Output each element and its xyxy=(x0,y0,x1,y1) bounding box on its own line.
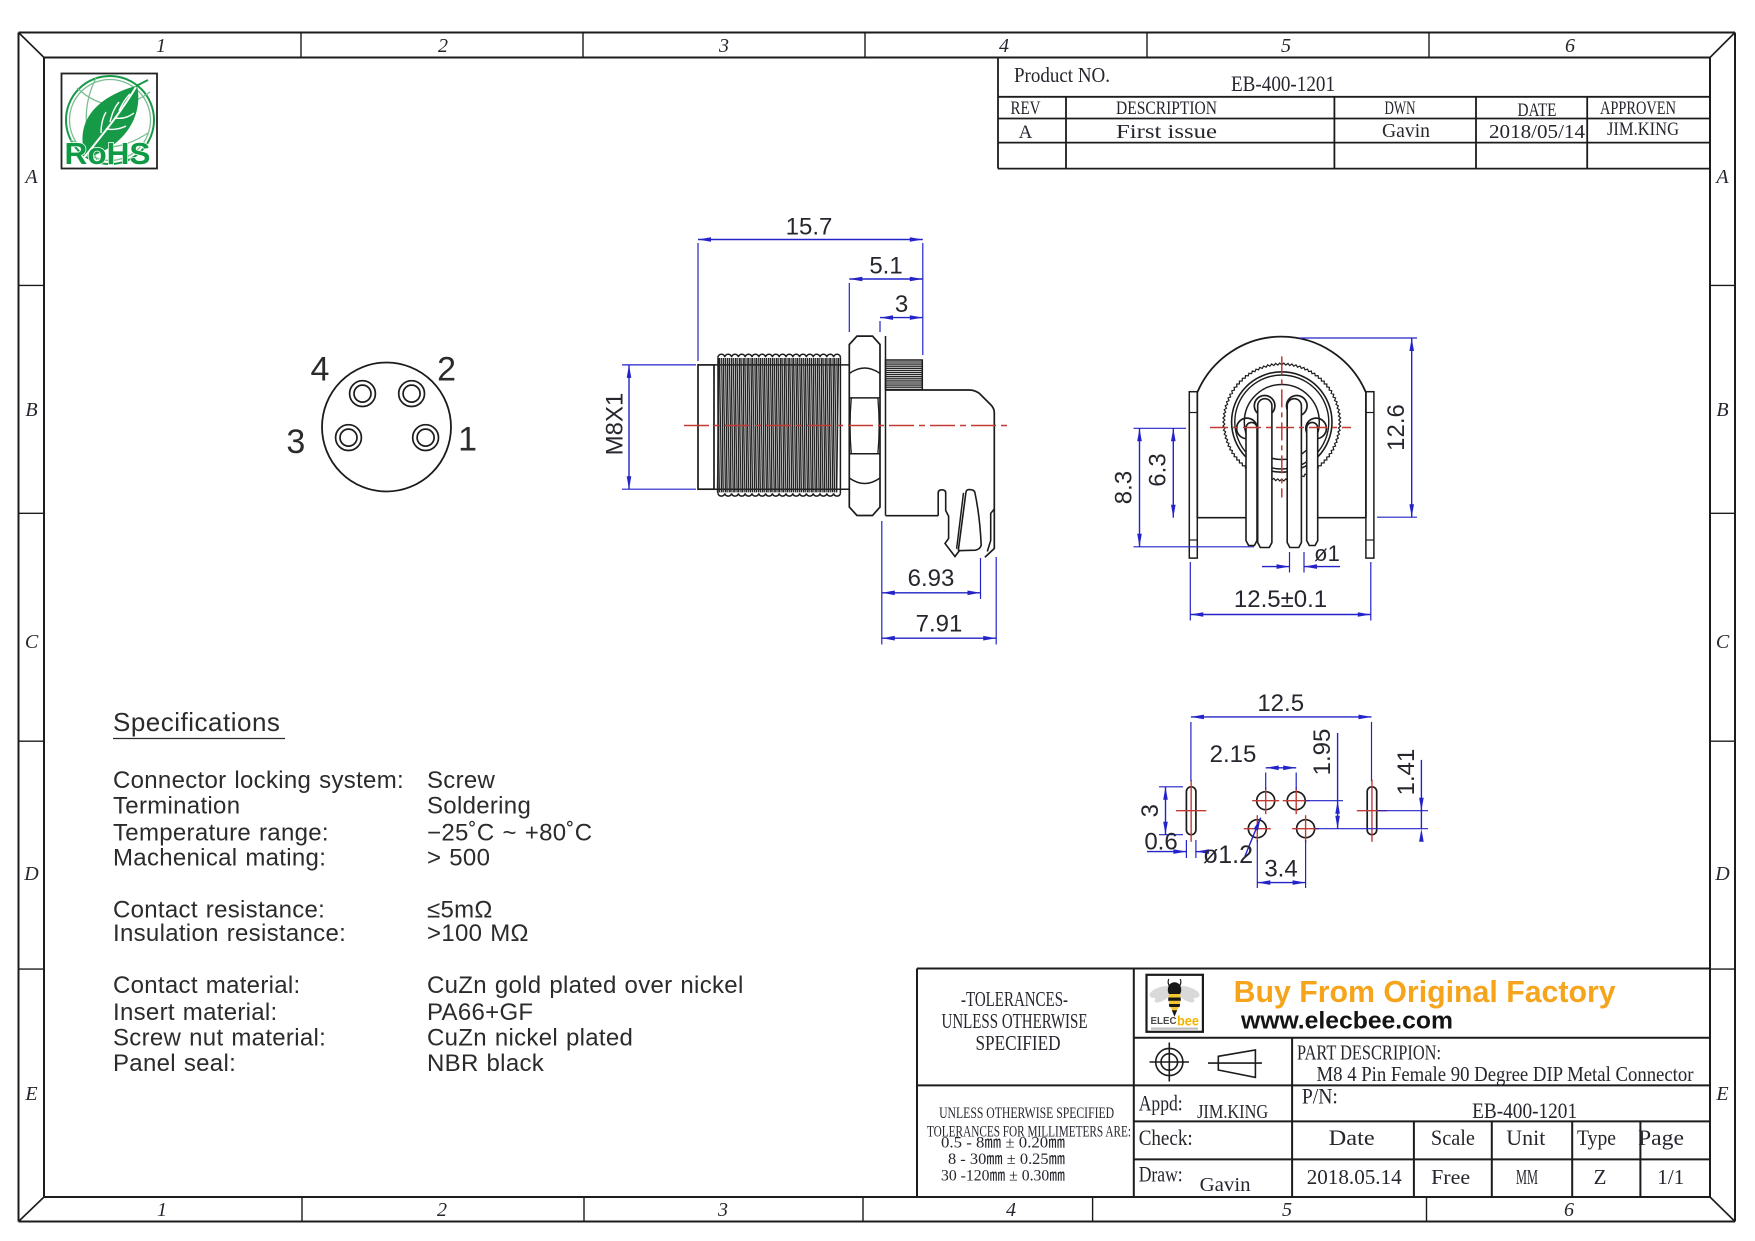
svg-text:4: 4 xyxy=(311,350,330,388)
svg-text:P/N:: P/N: xyxy=(1302,1083,1338,1108)
svg-text:REV: REV xyxy=(1011,98,1041,119)
svg-text:SPECIFIED: SPECIFIED xyxy=(976,1031,1061,1055)
svg-text:4: 4 xyxy=(1006,1199,1016,1221)
svg-text:RoHS: RoHS xyxy=(65,136,151,171)
svg-text:2: 2 xyxy=(437,1199,447,1221)
svg-text:6: 6 xyxy=(1564,1199,1574,1221)
svg-text:First issue: First issue xyxy=(1116,121,1217,143)
svg-text:JIM.KING: JIM.KING xyxy=(1607,119,1679,140)
svg-text:MM: MM xyxy=(1516,1165,1538,1189)
svg-text:CuZn nickel plated: CuZn nickel plated xyxy=(427,1025,633,1052)
svg-text:E: E xyxy=(24,1083,37,1105)
svg-text:D: D xyxy=(23,863,39,885)
svg-text:5: 5 xyxy=(1282,1199,1292,1221)
svg-text:2: 2 xyxy=(437,350,456,388)
svg-text:2: 2 xyxy=(438,35,448,57)
svg-text:−25˚C ~ +80˚C: −25˚C ~ +80˚C xyxy=(427,820,592,847)
svg-text:C: C xyxy=(1716,631,1730,653)
svg-text:5: 5 xyxy=(1281,35,1291,57)
svg-text:Unit: Unit xyxy=(1506,1125,1545,1150)
svg-text:12.5±0.1: 12.5±0.1 xyxy=(1234,586,1327,613)
svg-text:Page: Page xyxy=(1638,1125,1684,1150)
svg-text:ø1: ø1 xyxy=(1314,541,1340,566)
svg-text:Panel seal:: Panel seal: xyxy=(113,1050,236,1077)
svg-text:DESCRIPTION: DESCRIPTION xyxy=(1116,98,1217,119)
svg-text:1.95: 1.95 xyxy=(1309,729,1336,776)
svg-text:D: D xyxy=(1714,863,1730,885)
svg-text:Z: Z xyxy=(1594,1165,1607,1189)
svg-text:ELEC: ELEC xyxy=(1151,1015,1177,1027)
svg-text:5.1: 5.1 xyxy=(869,253,902,280)
svg-text:> 500: > 500 xyxy=(427,845,490,872)
svg-text:2.15: 2.15 xyxy=(1210,741,1257,768)
svg-text:Connector locking system:: Connector locking system: xyxy=(113,767,404,794)
svg-text:8.3: 8.3 xyxy=(1111,471,1138,504)
svg-text:6: 6 xyxy=(1565,35,1575,57)
svg-text:A: A xyxy=(1714,166,1729,188)
svg-text:M8 4 Pin Female 90 Degree DIP: M8 4 Pin Female 90 Degree DIP Metal Conn… xyxy=(1317,1062,1694,1086)
svg-text:B: B xyxy=(25,399,37,421)
svg-text:Appd:: Appd: xyxy=(1139,1091,1183,1116)
svg-text:1: 1 xyxy=(156,35,166,57)
svg-text:3: 3 xyxy=(286,423,305,461)
svg-text:Gavin: Gavin xyxy=(1382,120,1430,142)
svg-text:JIM.KING: JIM.KING xyxy=(1197,1101,1268,1123)
svg-text:B: B xyxy=(1716,399,1728,421)
svg-text:DWN: DWN xyxy=(1385,98,1416,119)
svg-text:8 - 30㎜ ± 0.25㎜: 8 - 30㎜ ± 0.25㎜ xyxy=(948,1151,1065,1168)
svg-text:C: C xyxy=(25,631,39,653)
svg-text:ø1.2: ø1.2 xyxy=(1203,841,1253,869)
svg-text:Machenical mating:: Machenical mating: xyxy=(113,845,326,872)
svg-text:0.6: 0.6 xyxy=(1144,829,1177,856)
svg-text:3: 3 xyxy=(895,291,908,318)
svg-text:Screw nut material:: Screw nut material: xyxy=(113,1025,326,1052)
svg-text:APPROVEN: APPROVEN xyxy=(1600,98,1676,119)
svg-text:3: 3 xyxy=(718,35,729,57)
svg-text:1/1: 1/1 xyxy=(1657,1165,1684,1189)
svg-text:12.5: 12.5 xyxy=(1257,690,1304,717)
svg-text:E: E xyxy=(1715,1083,1728,1105)
svg-text:>100 MΩ: >100 MΩ xyxy=(427,920,529,947)
svg-text:6.3: 6.3 xyxy=(1145,453,1172,486)
svg-text:3: 3 xyxy=(1137,804,1164,817)
svg-text:PART DESCRIPION:: PART DESCRIPION: xyxy=(1297,1041,1441,1065)
svg-text:UNLESS OTHERWISE SPECIFIED: UNLESS OTHERWISE SPECIFIED xyxy=(939,1105,1114,1122)
svg-text:Type: Type xyxy=(1577,1125,1616,1150)
svg-text:Termination: Termination xyxy=(113,793,240,820)
svg-text:EB-400-1201: EB-400-1201 xyxy=(1231,71,1335,96)
svg-text:3.4: 3.4 xyxy=(1264,856,1297,883)
svg-text:PA66+GF: PA66+GF xyxy=(427,999,533,1026)
svg-text:1: 1 xyxy=(157,1199,167,1221)
svg-text:2018/05/14: 2018/05/14 xyxy=(1489,121,1585,143)
svg-text:bee: bee xyxy=(1177,1013,1199,1029)
svg-text:-TOLERANCES-: -TOLERANCES- xyxy=(961,987,1068,1011)
svg-text:M8X1: M8X1 xyxy=(602,393,629,456)
svg-text:Product NO.: Product NO. xyxy=(1014,63,1110,87)
svg-text:Specifications: Specifications xyxy=(113,707,280,737)
svg-text:Insert material:: Insert material: xyxy=(113,999,278,1026)
svg-text:DATE: DATE xyxy=(1518,100,1557,121)
svg-text:3: 3 xyxy=(717,1199,728,1221)
svg-text:Scale: Scale xyxy=(1431,1125,1475,1150)
svg-text:Check:: Check: xyxy=(1139,1125,1193,1150)
svg-text:Date: Date xyxy=(1329,1125,1375,1150)
svg-text:CuZn gold plated over nick: CuZn gold plated over nickel xyxy=(427,972,744,999)
svg-text:0.5 - 8㎜ ± 0.20㎜: 0.5 - 8㎜ ± 0.20㎜ xyxy=(941,1135,1065,1152)
svg-text:www.elecbee.com: www.elecbee.com xyxy=(1240,1008,1453,1035)
svg-text:Free: Free xyxy=(1431,1165,1470,1189)
svg-text:NBR black: NBR black xyxy=(427,1050,545,1077)
svg-text:7.91: 7.91 xyxy=(916,611,963,638)
svg-text:Contact material:: Contact material: xyxy=(113,972,301,999)
svg-text:12.6: 12.6 xyxy=(1383,404,1410,451)
svg-text:Temperature range:: Temperature range: xyxy=(113,820,329,847)
svg-text:Screw: Screw xyxy=(427,767,496,794)
svg-text:4: 4 xyxy=(999,35,1009,57)
svg-text:Draw:: Draw: xyxy=(1139,1161,1183,1186)
svg-text:UNLESS OTHERWISE: UNLESS OTHERWISE xyxy=(942,1009,1088,1033)
svg-text:A: A xyxy=(23,166,38,188)
svg-text:30 -120㎜ ± 0.30㎜: 30 -120㎜ ± 0.30㎜ xyxy=(941,1168,1065,1185)
svg-text:15.7: 15.7 xyxy=(786,214,833,241)
svg-text:1: 1 xyxy=(458,421,477,459)
svg-text:Insulation resistance:: Insulation resistance: xyxy=(113,920,346,947)
svg-text:2018.05.14: 2018.05.14 xyxy=(1307,1165,1403,1189)
svg-text:A: A xyxy=(1019,122,1033,143)
svg-text:1.41: 1.41 xyxy=(1393,749,1420,796)
svg-text:Buy From Original Factory: Buy From Original Factory xyxy=(1234,974,1617,1009)
svg-text:6.93: 6.93 xyxy=(908,565,955,592)
svg-text:Soldering: Soldering xyxy=(427,793,531,820)
svg-text:EB-400-1201: EB-400-1201 xyxy=(1472,1098,1577,1123)
svg-text:Gavin: Gavin xyxy=(1200,1174,1251,1196)
